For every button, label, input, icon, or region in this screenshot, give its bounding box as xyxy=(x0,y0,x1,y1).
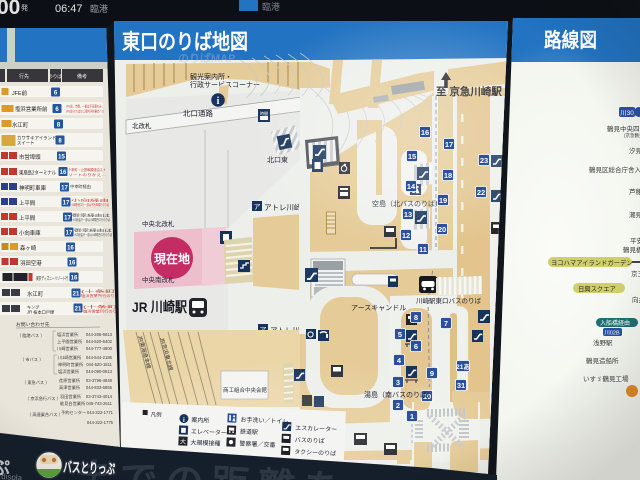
svg-text:03-3743-4014: 03-3743-4014 xyxy=(86,394,113,399)
svg-text:中幸町経由: 中幸町経由 xyxy=(70,183,91,190)
svg-text:塩浜営業所前: 塩浜営業所前 xyxy=(15,105,48,113)
svg-text:鶴見中央四: 鶴見中央四 xyxy=(607,124,640,133)
svg-text:東京ディズニーリゾート行: 東京ディズニーリゾート行 xyxy=(36,275,68,282)
svg-text:JR 川崎駅: JR 川崎駅 xyxy=(132,299,188,315)
svg-text:十条町・公営埠頭経由スト: 十条町・公営埠頭経由スト xyxy=(68,167,106,172)
svg-text:〔 東急バス 〕: 〔 東急バス 〕 xyxy=(22,379,49,386)
svg-text:スイート: スイート xyxy=(17,141,35,146)
svg-text:川02B: 川02B xyxy=(604,331,620,337)
svg-text:JFE前-のりばのご案内予約乗合バス: JFE前-のりばのご案内予約乗合バス xyxy=(66,109,104,114)
svg-text:15: 15 xyxy=(58,155,65,161)
svg-text:044-520-1511: 044-520-1511 xyxy=(86,362,112,367)
svg-text:能見台営業所: 能見台営業所 xyxy=(60,400,85,407)
svg-text:北改札: 北改札 xyxy=(132,121,152,130)
svg-text:16: 16 xyxy=(60,170,67,176)
svg-text:平安町: 平安町 xyxy=(630,236,640,245)
svg-text:〔 臨港バス 〕: 〔 臨港バス 〕 xyxy=(17,332,44,339)
svg-text:リートのりかえ…: リートのりかえ… xyxy=(68,172,106,177)
svg-text:044-322-1771: 044-322-1771 xyxy=(87,410,114,415)
svg-text:川崎営業所: 川崎営業所 xyxy=(57,345,78,352)
svg-text:(十条町): (十条町) xyxy=(83,304,121,309)
svg-text:〔 京浜急行バス 〕: 〔 京浜急行バス 〕 xyxy=(25,395,61,402)
svg-text:備考: 備考 xyxy=(77,73,87,80)
svg-text:〔 高速乗合バス 〕: 〔 高速乗合バス 〕 xyxy=(27,411,63,418)
svg-text:汐見橋: 汐見橋 xyxy=(629,146,640,155)
svg-text:潮見橋: 潮見橋 xyxy=(629,210,640,219)
svg-text:御幸経由は: 御幸経由は xyxy=(72,213,111,218)
svg-text:13: 13 xyxy=(404,210,412,219)
svg-text:ヨコハマアイランドガーデン: ヨコハマアイランドガーデン xyxy=(551,258,633,267)
svg-text:鶴見橋: 鶴見橋 xyxy=(623,245,640,254)
svg-text:16: 16 xyxy=(67,246,74,252)
svg-text:JFE前: JFE前 xyxy=(12,89,28,97)
svg-text:5: 5 xyxy=(398,330,402,339)
svg-text:中央北改札: 中央北改札 xyxy=(142,219,175,228)
svg-text:いすゞ鶴見工場: いすゞ鶴見工場 xyxy=(583,374,629,383)
svg-text:14: 14 xyxy=(407,182,416,191)
svg-text:羽田営業所: 羽田営業所 xyxy=(60,393,81,400)
svg-text:17: 17 xyxy=(61,186,68,192)
svg-text:神明町営業所: 神明町営業所 xyxy=(58,361,83,368)
svg-text:044-777-4800: 044-777-4800 xyxy=(86,346,113,351)
svg-text:i: i xyxy=(217,96,220,107)
svg-text:044-266-9613: 044-266-9613 xyxy=(86,332,113,337)
svg-text:6: 6 xyxy=(414,342,418,351)
svg-text:17: 17 xyxy=(445,140,453,149)
svg-text:観光案内所・: 観光案内所・ xyxy=(190,72,232,81)
svg-text:16: 16 xyxy=(69,261,76,267)
svg-text:小向車庫: 小向車庫 xyxy=(19,229,41,237)
svg-text:044-322-1775: 044-322-1775 xyxy=(87,420,114,425)
svg-text:市営埠頭: 市営埠頭 xyxy=(19,153,41,161)
svg-text:JFE前、市電、一部は平日朝のみ、: JFE前、市電、一部は平日朝のみ、 xyxy=(66,104,104,109)
svg-text:入船橋経由: 入船橋経由 xyxy=(600,319,630,327)
svg-text:11: 11 xyxy=(419,245,427,254)
svg-text:御幸経由は: 御幸経由は xyxy=(74,228,113,233)
svg-text:日興スクエア: 日興スクエア xyxy=(578,284,616,293)
svg-text:塩浜営業所行のりば: 塩浜営業所行のりば xyxy=(81,293,120,298)
svg-text:045-743-2611: 045-743-2611 xyxy=(86,401,112,406)
svg-text:12: 12 xyxy=(402,231,410,240)
svg-text:JR 桜本口戸線: JR 桜本口戸線 xyxy=(27,309,55,316)
svg-text:芦穂橋: 芦穂橋 xyxy=(629,187,640,196)
svg-text:21: 21 xyxy=(73,292,80,298)
svg-text:臨港: 臨港 xyxy=(90,3,108,14)
svg-text:川崎駅東口バスのりば: 川崎駅東口バスのりば xyxy=(416,296,482,305)
svg-text:2: 2 xyxy=(396,401,400,410)
svg-text:(京急鶴見駅: (京急鶴見駅 xyxy=(624,132,640,139)
svg-text:(十条町): (十条町) xyxy=(81,289,119,294)
svg-text:19: 19 xyxy=(439,196,447,205)
svg-text:1: 1 xyxy=(410,412,414,421)
svg-text:現在地: 現在地 xyxy=(154,251,190,266)
svg-text:03-3796-4848: 03-3796-4848 xyxy=(86,378,113,383)
svg-text:ア: ア xyxy=(254,203,261,211)
svg-text:行先: 行先 xyxy=(19,73,29,80)
svg-text:予約センター: 予約センター xyxy=(61,409,86,416)
svg-text:上平間営業所: 上平間営業所 xyxy=(57,338,82,345)
svg-text:神明町車庫: 神明町車庫 xyxy=(19,184,47,192)
svg-text:16: 16 xyxy=(421,128,429,137)
svg-text:小向経由行ー部は川崎駅西口行のりば: 小向経由行ー部は川崎駅西口行のりば xyxy=(72,217,110,222)
svg-text:9: 9 xyxy=(430,369,434,378)
svg-text:17: 17 xyxy=(63,201,70,207)
svg-text:7: 7 xyxy=(444,319,448,328)
svg-text:水江町: 水江町 xyxy=(12,121,29,129)
svg-text:17: 17 xyxy=(66,231,73,237)
svg-text:31: 31 xyxy=(457,381,465,390)
svg-text:塩浜営業所: 塩浜営業所 xyxy=(57,331,78,338)
svg-text:上平間: 上平間 xyxy=(19,214,35,222)
svg-text:アースキャンドル: アースキャンドル xyxy=(351,304,406,312)
svg-text:23: 23 xyxy=(480,156,488,165)
svg-text:北口通路: 北口通路 xyxy=(183,108,213,118)
svg-text:川1崎営業所: 川1崎営業所 xyxy=(58,354,81,361)
svg-text:湯島（南バスのりば）: 湯島（南バスのりば） xyxy=(364,390,434,399)
svg-text:044-090-0813: 044-090-0813 xyxy=(86,369,113,374)
svg-text:高津営業所: 高津営業所 xyxy=(59,384,80,391)
svg-text:浅野駅: 浅野駅 xyxy=(593,338,613,347)
svg-text:臨港: 臨港 xyxy=(262,1,280,12)
svg-text:東口のりば地図: 東口のりば地図 xyxy=(122,30,248,54)
svg-text:中央南改札: 中央南改札 xyxy=(142,275,175,284)
svg-text:お問い合わせ先: お問い合わせ先 xyxy=(16,321,50,328)
svg-text:森ヶ崎: 森ヶ崎 xyxy=(20,244,37,252)
svg-text:16: 16 xyxy=(71,276,78,282)
svg-text:大: 大 xyxy=(180,437,186,445)
svg-text:displa: displa xyxy=(1,472,23,480)
svg-text:川崎駅西口行ー部は市営埠頭行のりば: 川崎駅西口行ー部は市営埠頭行のりば xyxy=(71,202,109,207)
svg-text:川30: 川30 xyxy=(620,110,634,117)
svg-text:3: 3 xyxy=(396,378,400,387)
svg-text:上平間: 上平間 xyxy=(19,199,35,207)
svg-text:京三前: 京三前 xyxy=(631,269,640,278)
svg-text:塩浜営業所: 塩浜営業所 xyxy=(58,368,79,375)
svg-text:〔 市バス 〕: 〔 市バス 〕 xyxy=(20,356,43,363)
svg-text:羽田空港: 羽田空港 xyxy=(20,259,42,267)
svg-text:向井町: 向井町 xyxy=(632,295,640,304)
svg-text:発: 発 xyxy=(21,3,28,12)
svg-text:21: 21 xyxy=(75,307,82,313)
svg-text:荏原営業所: 荏原営業所 xyxy=(59,377,80,384)
svg-text:15: 15 xyxy=(408,152,416,161)
svg-text:バスとりっぷ: バスとりっぷ xyxy=(63,459,116,477)
svg-text:20: 20 xyxy=(438,225,446,234)
svg-text:のりば: のりば xyxy=(48,73,62,80)
svg-text:のりばMAP: のりばMAP xyxy=(178,51,235,65)
svg-text:044-544-2186: 044-544-2186 xyxy=(86,355,113,360)
svg-text:22: 22 xyxy=(477,188,485,197)
svg-text:小向経由行ー部は川崎駅西口行のりば: 小向経由行ー部は川崎駅西口行のりば xyxy=(74,232,112,237)
svg-text:06:47: 06:47 xyxy=(55,3,83,15)
svg-text:小向経由: 小向経由 xyxy=(71,198,109,203)
svg-text:鶴見造船所: 鶴見造船所 xyxy=(586,356,619,365)
svg-text:鶴見区総合庁舎入: 鶴見区総合庁舎入 xyxy=(589,165,640,174)
svg-text:21あ: 21あ xyxy=(456,362,470,371)
svg-text:044-520-6402: 044-520-6402 xyxy=(86,339,113,344)
svg-text:水江町: 水江町 xyxy=(27,290,44,298)
svg-text:044-833-6855: 044-833-6855 xyxy=(86,385,113,390)
svg-text:8: 8 xyxy=(414,313,418,322)
svg-text:17: 17 xyxy=(64,216,71,222)
svg-text:東扇島2ターミナル: 東扇島2ターミナル xyxy=(19,169,56,177)
svg-text:18: 18 xyxy=(444,171,452,180)
svg-text:00: 00 xyxy=(0,0,20,19)
